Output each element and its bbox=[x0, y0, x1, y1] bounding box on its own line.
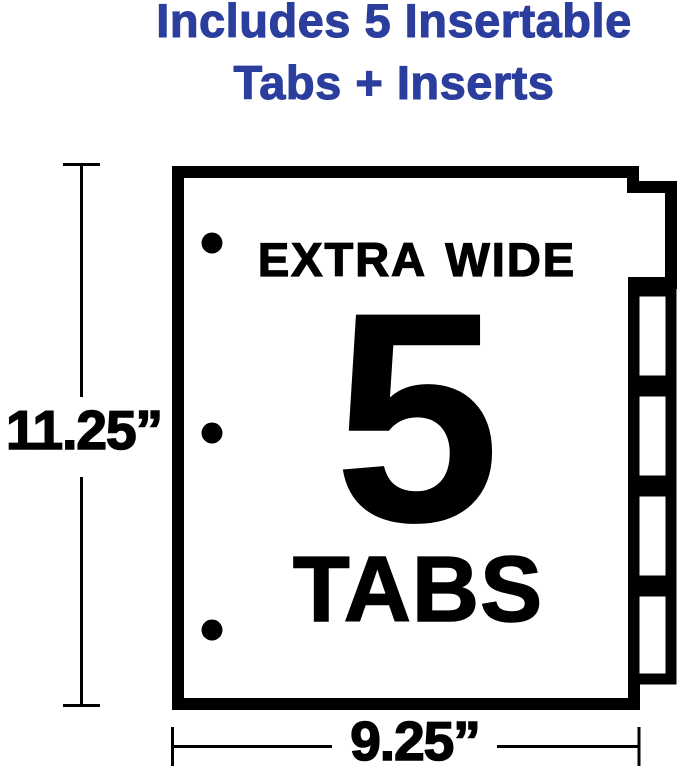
product-image: Includes 5 Insertable Tabs + Inserts EXT… bbox=[0, 0, 679, 768]
tab-count-number: 5 bbox=[190, 267, 644, 567]
tabs-label: TABS bbox=[190, 543, 646, 636]
height-dimension-label: 11.25” bbox=[1, 403, 167, 458]
width-dimension-label: 9.25” bbox=[330, 714, 500, 768]
